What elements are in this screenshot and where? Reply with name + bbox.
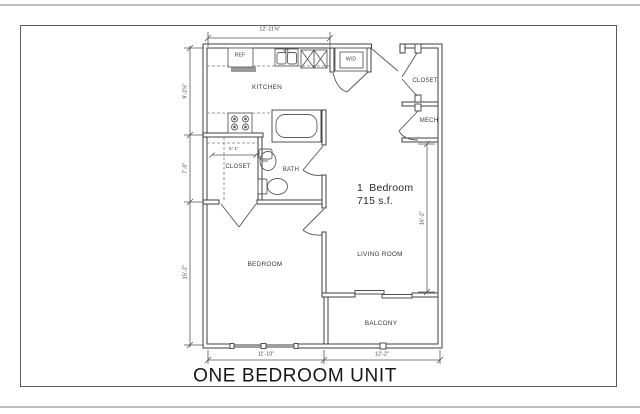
central-wall-upper bbox=[322, 110, 326, 145]
floor-plan-drawing bbox=[0, 0, 640, 414]
hall-closet-door-leaf-right bbox=[239, 204, 256, 227]
dim-label-top: 12'-11⅝" bbox=[260, 28, 281, 33]
unit-area-text: 715 s.f. bbox=[357, 196, 393, 207]
unit-type-text: 1 Bedroom bbox=[357, 183, 413, 194]
wd-door-swing bbox=[333, 73, 347, 92]
drawing-title: ONE BEDROOM UNIT bbox=[193, 367, 397, 386]
room-label-bedroom: BEDROOM bbox=[248, 262, 283, 269]
dimension-top bbox=[205, 32, 333, 47]
entry-door-leaf bbox=[372, 49, 398, 71]
room-label-mech: MECH bbox=[420, 118, 438, 124]
central-wall-lower bbox=[322, 232, 326, 297]
bedroom-door-leaf bbox=[303, 209, 324, 230]
room-label-hall-closet: CLOSET bbox=[225, 164, 250, 170]
central-wall-mid bbox=[322, 175, 326, 208]
balcony-railing-tick bbox=[380, 343, 386, 349]
floor-plan-sheet: KITCHEN CLOSET MECH CLOSET BATH BEDROOM … bbox=[0, 0, 640, 414]
closet-bath-divider bbox=[258, 137, 262, 200]
kitchen-counter-wall bbox=[203, 133, 263, 137]
dim-label-living: 16'-2" bbox=[421, 211, 426, 225]
dim-label-bottom-left: 11'-10" bbox=[258, 353, 275, 358]
entry-opening bbox=[372, 43, 402, 50]
interior-walls bbox=[203, 48, 438, 344]
wd-alcove-right-wall bbox=[367, 48, 371, 72]
bedroom-top-wall-left bbox=[203, 200, 219, 204]
entry-closet-door-leaf-top bbox=[402, 53, 417, 77]
room-label-bath: BATH bbox=[283, 167, 299, 173]
balcony-top-wall-left bbox=[322, 293, 355, 297]
bedroom-top-wall-right bbox=[257, 200, 326, 204]
room-label-entry-closet: CLOSET bbox=[412, 78, 437, 84]
bedroom-door-swing bbox=[303, 230, 322, 235]
dim-label-left-mid: 7'-0" bbox=[184, 163, 189, 174]
balcony-left-wall bbox=[324, 297, 328, 344]
room-label-balcony: BALCONY bbox=[365, 321, 397, 328]
bath-door-leaf bbox=[303, 146, 323, 170]
room-label-kitchen: KITCHEN bbox=[252, 85, 282, 92]
fixture-label-ref: REF bbox=[235, 54, 246, 59]
room-label-living-room: LIVING ROOM bbox=[357, 252, 403, 259]
dim-label-hall-closet: 5'-1" bbox=[229, 147, 239, 152]
dim-label-left-upper: 9'-2⅝" bbox=[184, 83, 189, 98]
bath-door-swing bbox=[303, 170, 322, 175]
dim-label-bottom-right: 12'-2" bbox=[375, 353, 389, 358]
dishwasher-cabinet bbox=[301, 50, 327, 68]
dimension-hall-closet bbox=[210, 153, 259, 158]
kitchen-sink bbox=[275, 49, 298, 66]
balcony-sliding-door bbox=[355, 291, 412, 299]
dim-label-left-lower: 15'-2" bbox=[184, 265, 189, 279]
stove bbox=[228, 113, 252, 133]
mech-door-leaf bbox=[399, 111, 418, 131]
hall-closet-door-leaf-left bbox=[221, 204, 239, 227]
wd-door-leaf bbox=[347, 72, 368, 92]
dimension-bottom bbox=[205, 350, 443, 364]
fixture-label-wd: W/D bbox=[346, 58, 356, 63]
bathtub bbox=[272, 110, 321, 142]
wd-alcove-left-wall bbox=[330, 48, 334, 72]
